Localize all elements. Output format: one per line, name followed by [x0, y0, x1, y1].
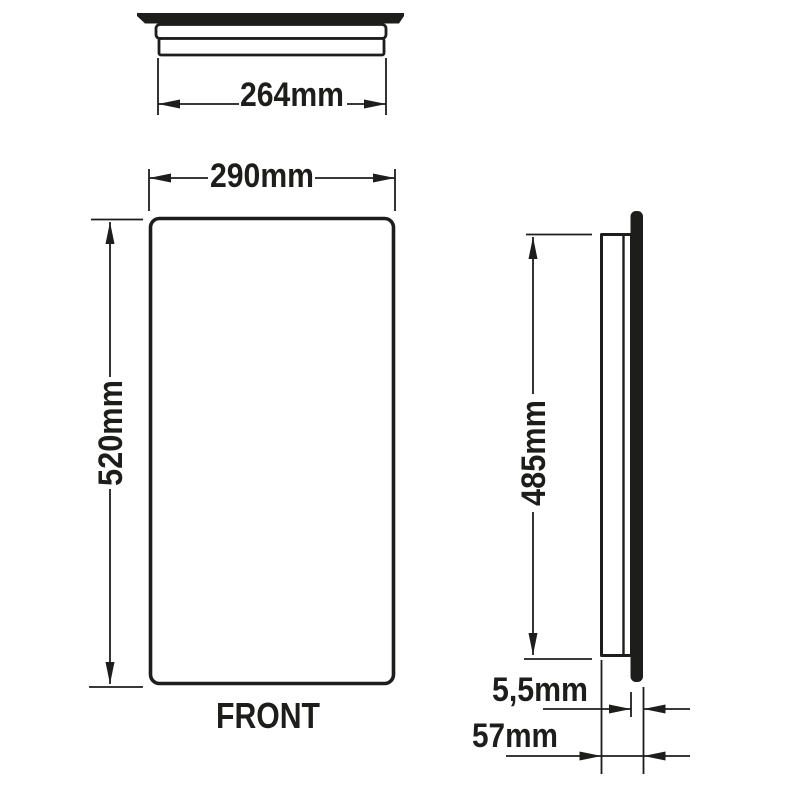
dimension-label-depth: 57mm	[472, 717, 558, 755]
arrowhead-left-icon	[644, 705, 666, 714]
arrowhead-right-icon	[364, 100, 386, 109]
side-view-front-panel-bar	[631, 211, 644, 682]
dimension-front-width: 290mm	[149, 157, 395, 211]
side-view	[602, 211, 644, 682]
dimension-top-width: 264mm	[158, 58, 386, 115]
top-view-housing-lower	[159, 39, 384, 56]
arrowhead-right-icon	[580, 752, 602, 761]
dimension-front-height: 520mm	[89, 220, 143, 688]
dimension-label-panel-thickness: 5,5mm	[492, 671, 588, 709]
side-view-housing	[602, 235, 632, 656]
front-view: FRONT	[151, 219, 394, 737]
arrowhead-right-icon	[609, 705, 631, 714]
arrowhead-up-icon	[106, 222, 115, 244]
technical-drawing: 264mm FRONT 290mm 520mm	[0, 0, 785, 785]
top-view-housing-upper	[156, 25, 386, 39]
dimension-label-front-width: 290mm	[210, 157, 314, 195]
arrowhead-left-icon	[158, 100, 180, 109]
top-view-front-panel-plate	[137, 13, 404, 24]
dimension-label-top-width: 264mm	[240, 76, 344, 114]
arrowhead-right-icon	[373, 174, 395, 183]
top-view	[137, 13, 404, 55]
dimension-label-front-height: 520mm	[92, 380, 130, 486]
arrowhead-left-icon	[149, 174, 171, 183]
view-caption: FRONT	[216, 695, 320, 736]
arrowhead-down-icon	[529, 633, 538, 655]
dimension-side-height: 485mm	[515, 235, 592, 660]
dimension-depth: 57mm	[472, 717, 690, 761]
drawing-canvas: 264mm FRONT 290mm 520mm	[0, 0, 785, 785]
arrowhead-down-icon	[106, 662, 115, 684]
dimension-label-side-height: 485mm	[515, 400, 553, 506]
arrowhead-left-icon	[644, 752, 666, 761]
arrowhead-up-icon	[529, 237, 538, 259]
front-panel-outline	[151, 219, 394, 684]
